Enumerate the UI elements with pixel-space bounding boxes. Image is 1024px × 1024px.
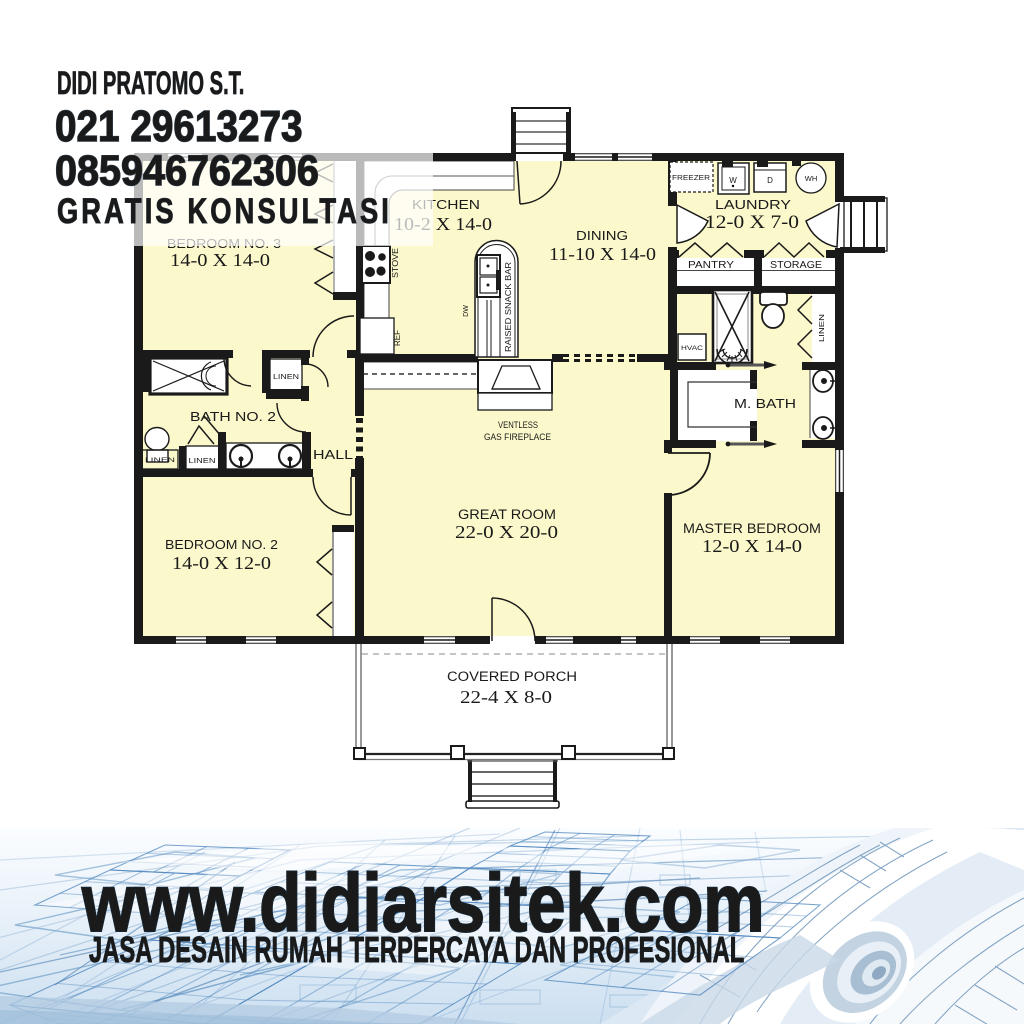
- svg-text:HVAC: HVAC: [681, 345, 703, 352]
- svg-text:LINEN: LINEN: [819, 314, 826, 342]
- svg-text:RAISED SNACK BAR: RAISED SNACK BAR: [504, 262, 513, 352]
- svg-text:14-0 X 12-0: 14-0 X 12-0: [172, 553, 271, 573]
- svg-text:DW: DW: [463, 305, 470, 317]
- svg-text:PANTRY: PANTRY: [688, 259, 734, 271]
- svg-text:WH: WH: [805, 174, 818, 183]
- svg-text:22-4 X 8-0: 22-4 X 8-0: [460, 687, 552, 707]
- svg-text:BEDROOM NO. 2: BEDROOM NO. 2: [165, 537, 278, 552]
- svg-text:085946762306: 085946762306: [55, 146, 319, 194]
- svg-text:12-0 X 7-0: 12-0 X 7-0: [705, 213, 799, 233]
- svg-text:MASTER BEDROOM: MASTER BEDROOM: [683, 521, 821, 536]
- svg-text:DIDI PRATOMO S.T.: DIDI PRATOMO S.T.: [57, 65, 244, 101]
- svg-text:LINEN: LINEN: [273, 372, 299, 381]
- svg-text:14-0 X 14-0: 14-0 X 14-0: [170, 250, 270, 270]
- svg-text:12-0 X 14-0: 12-0 X 14-0: [702, 536, 802, 556]
- svg-text:22-0 X 20-0: 22-0 X 20-0: [455, 522, 558, 542]
- svg-text:LAUNDRY: LAUNDRY: [715, 197, 791, 212]
- svg-text:M. BATH: M. BATH: [734, 397, 796, 411]
- svg-text:HALL: HALL: [313, 447, 353, 462]
- svg-text:LINEN: LINEN: [145, 457, 175, 464]
- svg-text:JASA DESAIN RUMAH TERPERCAYA D: JASA DESAIN RUMAH TERPERCAYA DAN PROFESI…: [89, 930, 744, 970]
- svg-text:STORAGE: STORAGE: [770, 259, 822, 271]
- svg-text:D: D: [767, 176, 773, 185]
- svg-text:BATH NO. 2: BATH NO. 2: [190, 410, 276, 424]
- svg-text:GAS FIREPLACE: GAS FIREPLACE: [484, 432, 551, 442]
- svg-text:GREAT ROOM: GREAT ROOM: [458, 507, 556, 522]
- svg-text:W: W: [729, 176, 737, 185]
- svg-text:COVERED PORCH: COVERED PORCH: [447, 669, 577, 684]
- svg-text:GRATIS KONSULTASI: GRATIS KONSULTASI: [57, 192, 392, 231]
- svg-text:LINEN: LINEN: [189, 458, 216, 465]
- svg-text:STOVE: STOVE: [391, 248, 400, 278]
- svg-text:VENTLESS: VENTLESS: [498, 420, 538, 430]
- svg-text:FREEZER: FREEZER: [672, 173, 711, 182]
- svg-text:REF: REF: [393, 330, 402, 346]
- svg-text:DINING: DINING: [576, 228, 628, 243]
- svg-text:021 29613273: 021 29613273: [55, 101, 303, 151]
- svg-text:11-10 X 14-0: 11-10 X 14-0: [549, 244, 656, 264]
